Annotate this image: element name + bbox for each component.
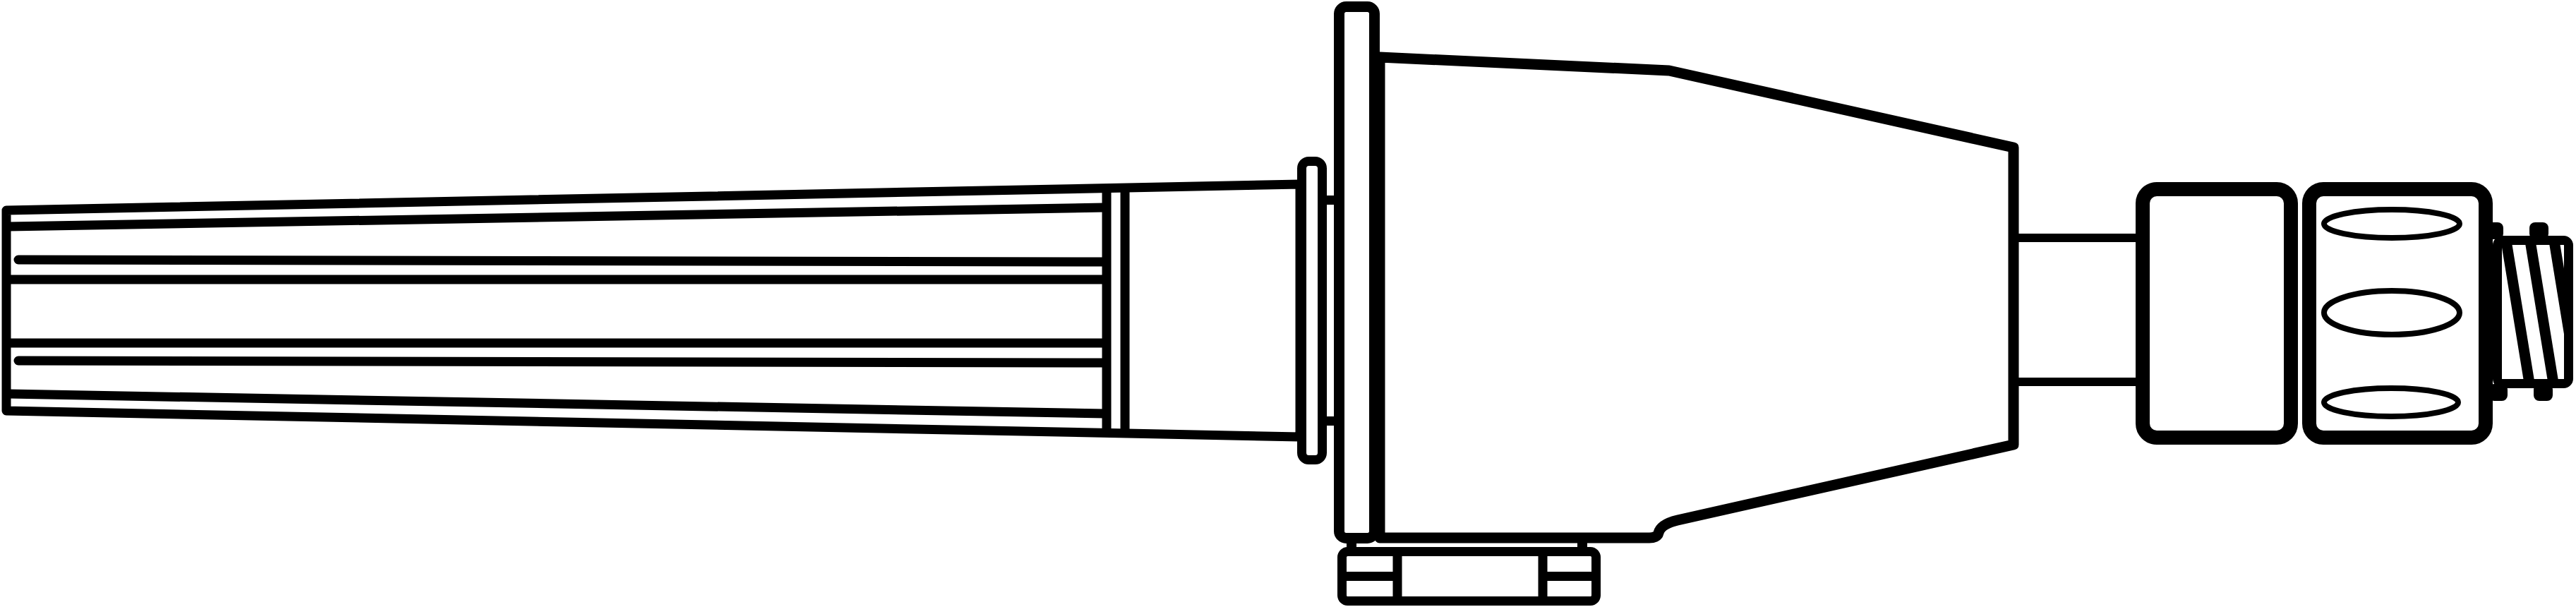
flange-tick-bottom: [1325, 416, 1337, 426]
spike-flute-line: [18, 260, 1105, 262]
grip-collar-outline: [2143, 189, 2291, 438]
spike-adapter-illustration: [0, 0, 2576, 607]
knurled-knob: [2309, 189, 2486, 438]
flange-outline: [1302, 162, 1323, 460]
body-cone: [1380, 57, 2014, 538]
mounting-plate: [1340, 7, 1375, 539]
flange-tick-top: [1325, 196, 1337, 205]
base-clip: [1342, 535, 1596, 601]
spike-flute-line: [18, 361, 1105, 363]
flange: [1302, 162, 1337, 460]
luer-thread: [2484, 222, 2576, 401]
grip-collar: [2143, 189, 2291, 438]
figure-stage: [0, 0, 2576, 607]
neck: [2015, 238, 2140, 382]
plate-outline: [1340, 7, 1375, 539]
cone-outline: [1380, 57, 2014, 538]
